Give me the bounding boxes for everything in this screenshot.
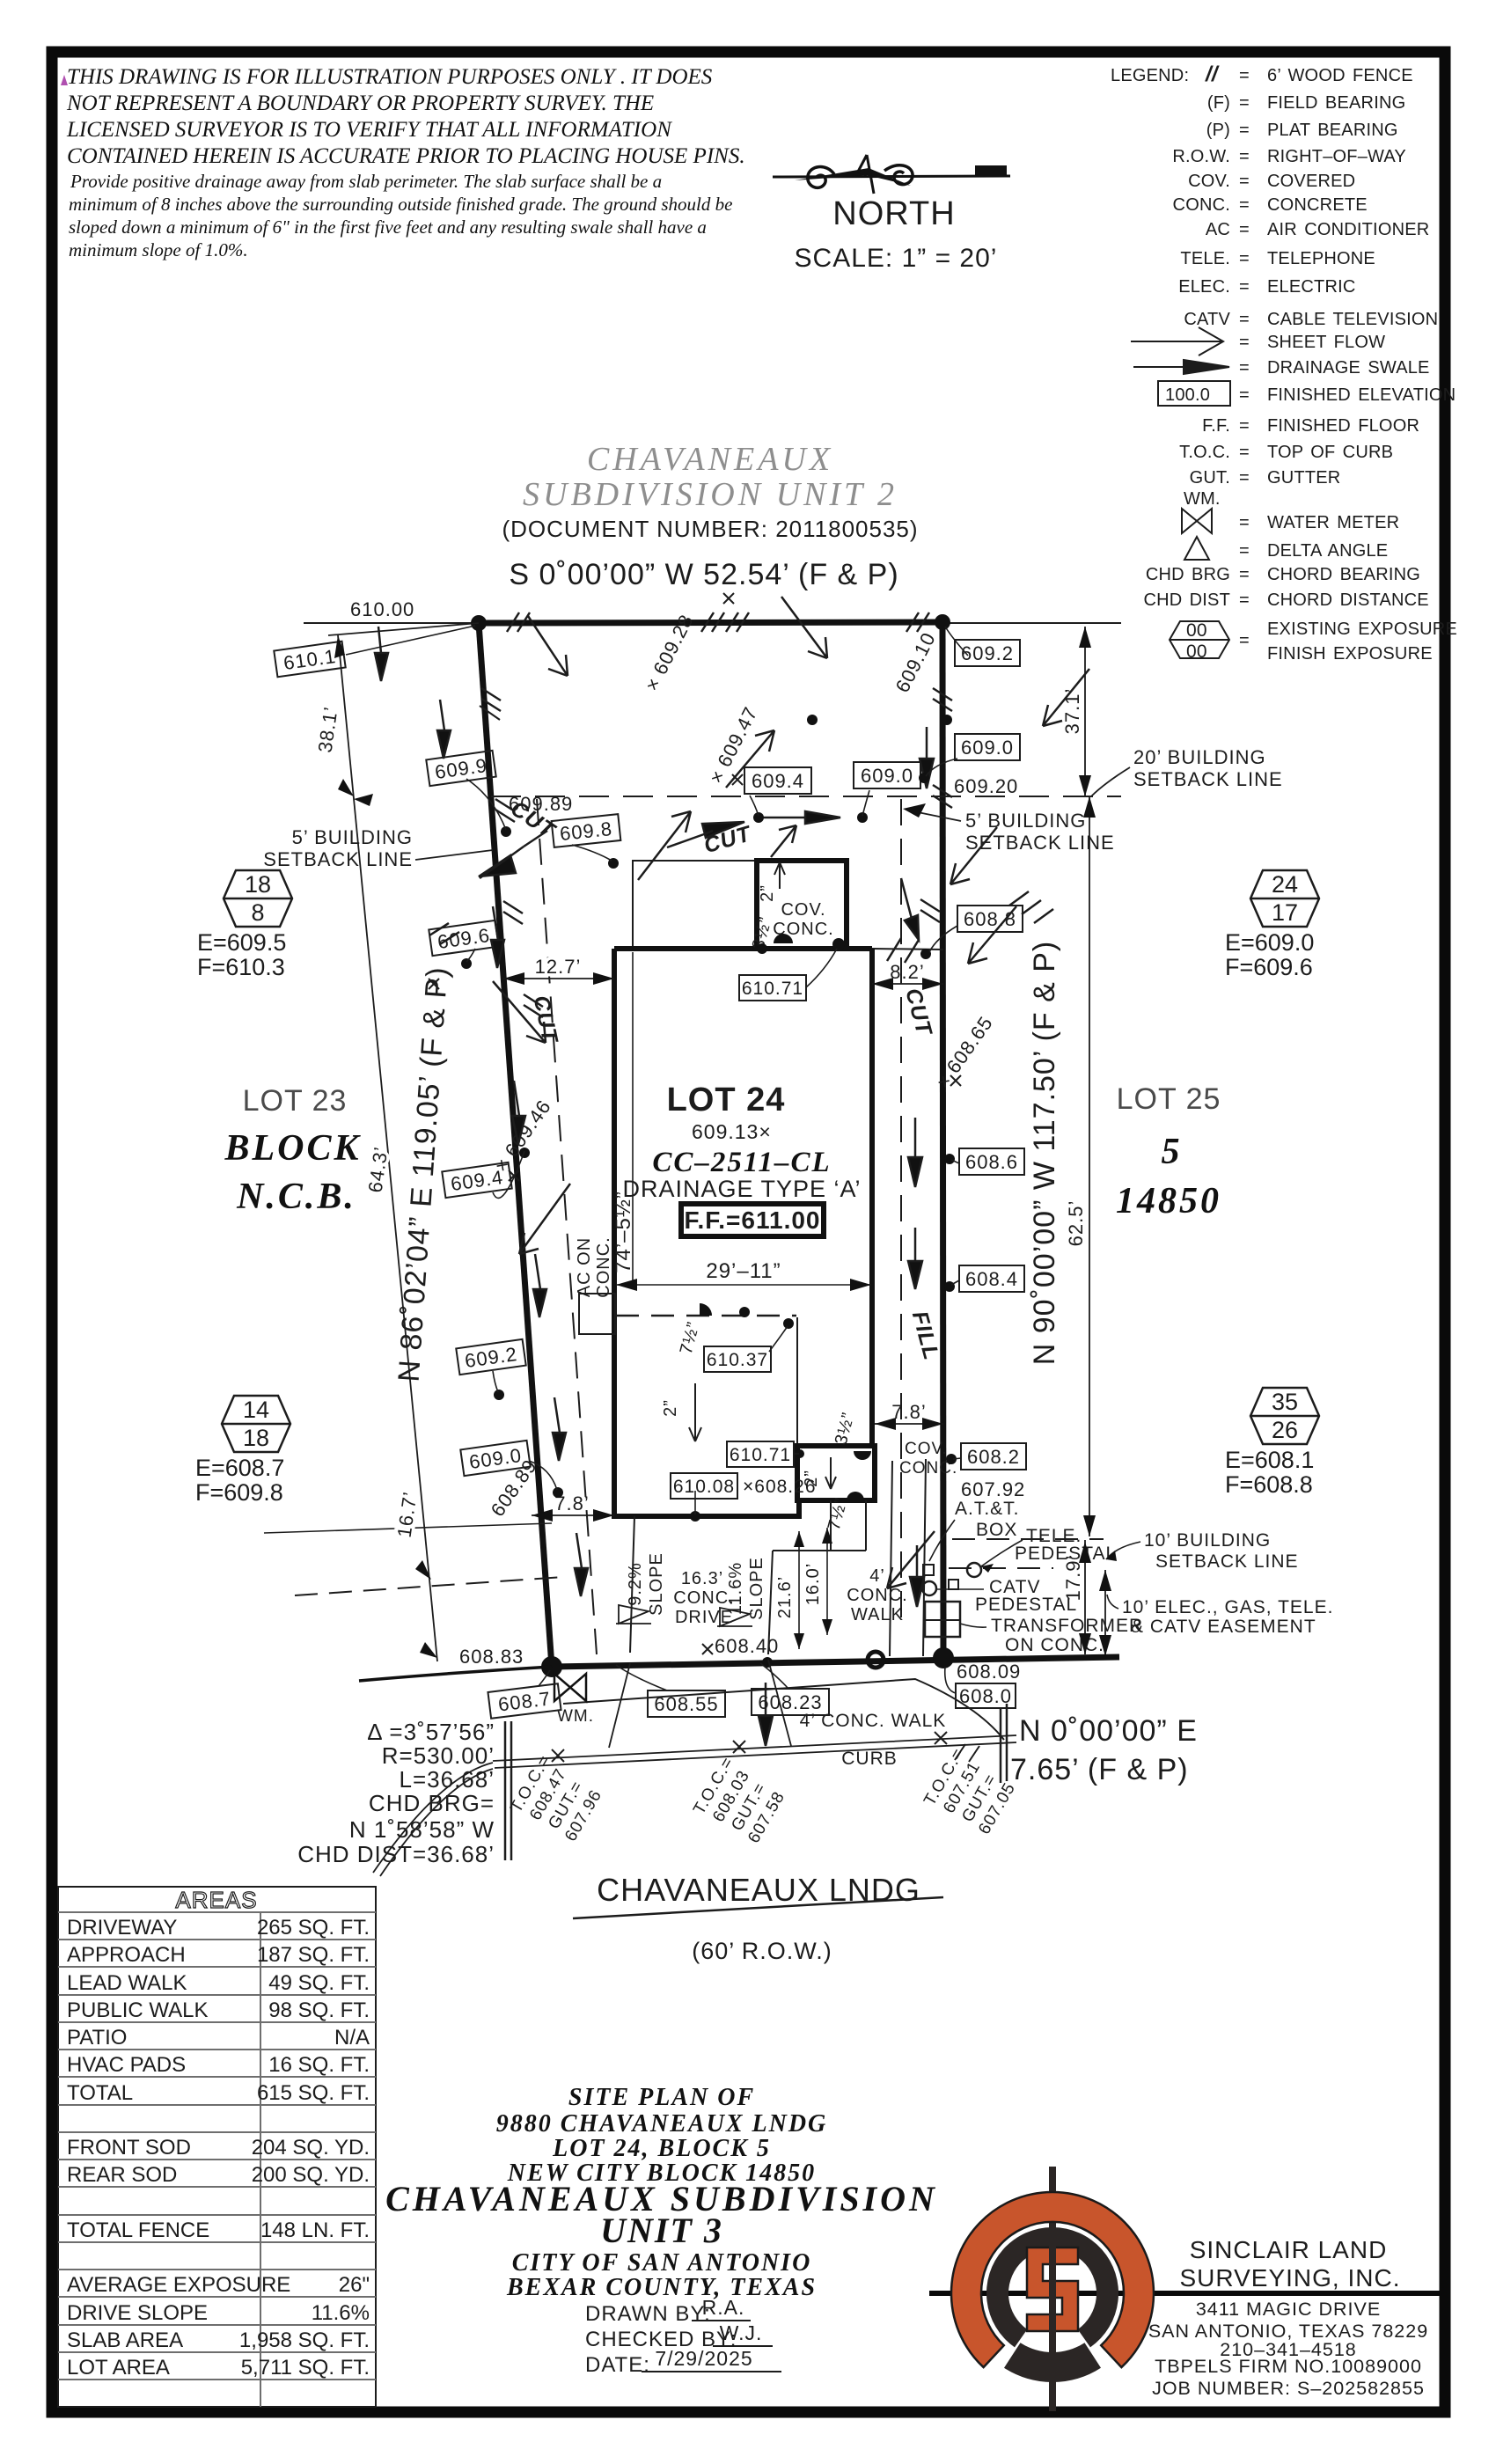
svg-text:=: = bbox=[1239, 565, 1250, 584]
svg-text:SHEET FLOW: SHEET FLOW bbox=[1267, 333, 1385, 352]
svg-text:ELECTRIC: ELECTRIC bbox=[1267, 277, 1356, 297]
svg-text:WM.: WM. bbox=[557, 1707, 594, 1726]
svg-text:R=530.00’: R=530.00’ bbox=[382, 1742, 495, 1769]
svg-text:LOT 23: LOT 23 bbox=[243, 1084, 348, 1118]
svg-text:35: 35 bbox=[1272, 1389, 1298, 1415]
svg-text:CONC.: CONC. bbox=[773, 920, 833, 939]
svg-text:SCALE: 1” = 20’: SCALE: 1” = 20’ bbox=[795, 244, 998, 273]
svg-text:SETBACK LINE: SETBACK LINE bbox=[263, 848, 413, 870]
svg-text:=: = bbox=[1239, 310, 1250, 329]
svg-text:610.71: 610.71 bbox=[730, 1445, 791, 1465]
svg-text:=: = bbox=[1239, 468, 1250, 488]
svg-text:608.2: 608.2 bbox=[967, 1446, 1020, 1468]
svg-text:CITY OF SAN ANTONIO: CITY OF SAN ANTONIO bbox=[512, 2249, 812, 2277]
svg-text:608.09: 608.09 bbox=[957, 1661, 1021, 1683]
svg-text:200 SQ. YD.: 200 SQ. YD. bbox=[252, 2163, 370, 2187]
svg-text:F=608.8: F=608.8 bbox=[1225, 1471, 1313, 1498]
svg-text:TOTAL FENCE: TOTAL FENCE bbox=[67, 2218, 209, 2242]
svg-text:608.83: 608.83 bbox=[459, 1646, 524, 1668]
svg-text:N.C.B.: N.C.B. bbox=[236, 1177, 356, 1217]
svg-text:7.8’: 7.8’ bbox=[891, 1401, 926, 1423]
svg-text://: // bbox=[1205, 62, 1220, 86]
svg-text:SINCLAIR LAND: SINCLAIR LAND bbox=[1190, 2236, 1388, 2263]
svg-text:2”: 2” bbox=[802, 1470, 821, 1487]
svg-text:37.1’: 37.1’ bbox=[1061, 688, 1083, 735]
svg-text:DRAINAGE TYPE ‘A’: DRAINAGE TYPE ‘A’ bbox=[622, 1176, 861, 1202]
svg-text:14: 14 bbox=[243, 1397, 269, 1423]
svg-text:SETBACK LINE: SETBACK LINE bbox=[1155, 1551, 1299, 1572]
svg-text:607.92: 607.92 bbox=[961, 1478, 1025, 1500]
svg-text:=: = bbox=[1239, 147, 1250, 166]
svg-text:7/29/2025: 7/29/2025 bbox=[655, 2347, 752, 2370]
svg-text:=: = bbox=[1239, 220, 1250, 239]
svg-text:5’ BUILDING: 5’ BUILDING bbox=[292, 826, 413, 848]
svg-text:10’ BUILDING: 10’ BUILDING bbox=[1144, 1530, 1271, 1551]
svg-text:5’ BUILDING: 5’ BUILDING bbox=[965, 810, 1086, 832]
svg-text:LOT 24, BLOCK 5: LOT 24, BLOCK 5 bbox=[552, 2135, 771, 2162]
svg-text:4’: 4’ bbox=[869, 1566, 885, 1586]
svg-text:Provide positive drainage away: Provide positive drainage away from slab… bbox=[70, 171, 662, 192]
svg-text:CHORD DISTANCE: CHORD DISTANCE bbox=[1267, 590, 1429, 610]
svg-text:16.0’: 16.0’ bbox=[803, 1563, 823, 1605]
svg-text:WATER METER: WATER METER bbox=[1267, 513, 1399, 532]
svg-text:NORTH: NORTH bbox=[832, 195, 955, 232]
svg-text:609.13×: 609.13× bbox=[692, 1120, 772, 1143]
svg-text:E=608.1: E=608.1 bbox=[1225, 1447, 1314, 1473]
svg-text:610.00: 610.00 bbox=[350, 598, 414, 620]
svg-text:LEGEND:: LEGEND: bbox=[1111, 66, 1189, 85]
svg-text:=: = bbox=[1239, 172, 1250, 191]
svg-text:W.J.: W.J. bbox=[720, 2321, 763, 2344]
svg-text:49 SQ. FT.: 49 SQ. FT. bbox=[268, 1971, 370, 1995]
svg-text:TELE.: TELE. bbox=[1180, 249, 1230, 268]
svg-text:CHORD BEARING: CHORD BEARING bbox=[1267, 565, 1420, 584]
svg-text:& CATV EASEMENT: & CATV EASEMENT bbox=[1131, 1617, 1316, 1637]
svg-text:minimum of 8 inches above the: minimum of 8 inches above the surroundin… bbox=[69, 194, 732, 215]
svg-text:DATE:: DATE: bbox=[585, 2353, 650, 2377]
svg-text:16.3’: 16.3’ bbox=[681, 1569, 723, 1588]
svg-text:AVERAGE EXPOSURE: AVERAGE EXPOSURE bbox=[67, 2273, 290, 2297]
svg-text:26": 26" bbox=[339, 2273, 370, 2297]
svg-text:R.A.: R.A. bbox=[702, 2296, 745, 2319]
svg-text:COV.: COV. bbox=[905, 1440, 948, 1458]
svg-text:SLAB AREA: SLAB AREA bbox=[67, 2328, 183, 2352]
svg-text:74’–5½”: 74’–5½” bbox=[612, 1191, 635, 1273]
svg-text:24: 24 bbox=[1272, 871, 1298, 898]
svg-text:sloped down a minimum of 6" in: sloped down a minimum of 6" in the first… bbox=[69, 216, 707, 238]
svg-text:=: = bbox=[1239, 590, 1250, 610]
svg-text:AC: AC bbox=[1206, 220, 1230, 239]
svg-text:COV.: COV. bbox=[1188, 172, 1230, 191]
svg-text:AC ON: AC ON bbox=[575, 1237, 594, 1297]
svg-text:PATIO: PATIO bbox=[67, 2026, 127, 2050]
svg-text:10’ ELEC., GAS, TELE.: 10’ ELEC., GAS, TELE. bbox=[1122, 1597, 1333, 1617]
svg-text:CATV: CATV bbox=[1184, 310, 1230, 329]
svg-text:CONTAINED HEREIN IS ACCURATE P: CONTAINED HEREIN IS ACCURATE PRIOR TO PL… bbox=[67, 144, 745, 168]
svg-text:N 90˚00’00” W 117.50’ (F: N 90˚00’00” W 117.50’ (F & P) bbox=[1028, 941, 1061, 1366]
svg-text:CHD DIST: CHD DIST bbox=[1143, 590, 1230, 610]
svg-text:SETBACK LINE: SETBACK LINE bbox=[1133, 768, 1283, 790]
svg-text:FRONT SOD: FRONT SOD bbox=[67, 2136, 191, 2160]
svg-text:PEDESTAL: PEDESTAL bbox=[975, 1595, 1077, 1615]
svg-text:CHD BRG=: CHD BRG= bbox=[369, 1790, 495, 1816]
svg-text:11.6%: 11.6% bbox=[726, 1562, 745, 1615]
svg-text:609.20: 609.20 bbox=[954, 775, 1018, 797]
svg-text:608.8: 608.8 bbox=[964, 908, 1016, 930]
svg-text:=: = bbox=[1239, 121, 1250, 140]
svg-text:E=608.7: E=608.7 bbox=[195, 1455, 284, 1481]
svg-text:A.T.&T.: A.T.&T. bbox=[955, 1499, 1020, 1519]
svg-text:5: 5 bbox=[1162, 1132, 1180, 1172]
svg-text:9.2%: 9.2% bbox=[626, 1562, 645, 1606]
svg-text:=: = bbox=[1239, 277, 1250, 297]
svg-text:F=610.3: F=610.3 bbox=[197, 954, 285, 980]
svg-text:=: = bbox=[1239, 631, 1250, 650]
svg-text:S 0˚00’00” W 52.54’ (F &: S 0˚00’00” W 52.54’ (F & P) bbox=[509, 558, 898, 591]
svg-text:62.5’: 62.5’ bbox=[1065, 1200, 1087, 1247]
svg-text:LOT AREA: LOT AREA bbox=[67, 2356, 170, 2380]
svg-text:TOTAL: TOTAL bbox=[67, 2081, 133, 2105]
svg-text:THIS DRAWING IS FOR ILLUSTRATI: THIS DRAWING IS FOR ILLUSTRATION PURPOSE… bbox=[67, 65, 713, 89]
svg-text:9880 CHAVANEAUX LNDG: 9880 CHAVANEAUX LNDG bbox=[496, 2110, 828, 2138]
svg-text:(60’ R.O.W.): (60’ R.O.W.) bbox=[692, 1938, 832, 1964]
svg-text:PEDESTAL: PEDESTAL bbox=[1015, 1544, 1117, 1564]
svg-text:20’ BUILDING: 20’ BUILDING bbox=[1133, 746, 1266, 768]
svg-text:17: 17 bbox=[1272, 899, 1298, 926]
svg-text:ELEC.: ELEC. bbox=[1178, 277, 1230, 297]
svg-text:=: = bbox=[1239, 93, 1250, 113]
svg-text:WM.: WM. bbox=[1184, 489, 1221, 509]
svg-text:4’ CONC. WALK: 4’ CONC. WALK bbox=[800, 1711, 947, 1731]
svg-text:FINISHED ELEVATION: FINISHED ELEVATION bbox=[1267, 385, 1456, 405]
svg-text:=: = bbox=[1239, 333, 1250, 352]
svg-text:11.6%: 11.6% bbox=[312, 2301, 370, 2325]
svg-text:CONC.: CONC. bbox=[847, 1586, 907, 1605]
svg-text:610.71: 610.71 bbox=[742, 979, 803, 999]
svg-text:8.2’: 8.2’ bbox=[890, 961, 924, 983]
svg-text:DELTA ANGLE: DELTA ANGLE bbox=[1267, 541, 1388, 561]
svg-text:HVAC PADS: HVAC PADS bbox=[67, 2053, 186, 2077]
svg-text:E=609.0: E=609.0 bbox=[1225, 929, 1314, 956]
svg-text:=: = bbox=[1239, 443, 1250, 462]
svg-text:=: = bbox=[1239, 541, 1250, 561]
svg-text:DRIVEWAY: DRIVEWAY bbox=[67, 1916, 177, 1940]
svg-text:FINISHED FLOOR: FINISHED FLOOR bbox=[1267, 416, 1419, 436]
svg-text:1,958 SQ. FT.: 1,958 SQ. FT. bbox=[239, 2328, 370, 2352]
svg-text:29’–11”: 29’–11” bbox=[706, 1259, 781, 1283]
svg-text:EXISTING EXPOSURE: EXISTING EXPOSURE bbox=[1267, 620, 1457, 639]
svg-text:TOP OF CURB: TOP OF CURB bbox=[1267, 443, 1393, 462]
svg-text:8: 8 bbox=[251, 899, 264, 926]
svg-text:609.2: 609.2 bbox=[961, 642, 1014, 664]
svg-text:Δ =3˚57’56”: Δ =3˚57’56” bbox=[367, 1719, 495, 1745]
svg-text:COV.: COV. bbox=[781, 900, 825, 920]
svg-text:L=36.68’: L=36.68’ bbox=[400, 1766, 495, 1793]
svg-text:CONCRETE: CONCRETE bbox=[1267, 195, 1368, 215]
svg-text:REAR SOD: REAR SOD bbox=[67, 2163, 177, 2187]
svg-text:DRIVE SLOPE: DRIVE SLOPE bbox=[67, 2301, 208, 2325]
svg-text:DRAWN BY:: DRAWN BY: bbox=[585, 2302, 711, 2326]
svg-text:18: 18 bbox=[243, 1425, 269, 1451]
svg-text:WALK: WALK bbox=[851, 1605, 904, 1624]
svg-text:609.0: 609.0 bbox=[861, 765, 913, 787]
svg-text:SETBACK LINE: SETBACK LINE bbox=[965, 832, 1115, 854]
svg-text:F=609.6: F=609.6 bbox=[1225, 954, 1313, 980]
svg-text:608.4: 608.4 bbox=[965, 1268, 1018, 1290]
svg-text:LOT 24: LOT 24 bbox=[667, 1082, 786, 1118]
svg-text:minimum slope of 1.0%.: minimum slope of 1.0%. bbox=[69, 239, 248, 260]
svg-text:COVERED: COVERED bbox=[1267, 172, 1355, 191]
svg-text:BEXAR COUNTY, TEXAS: BEXAR COUNTY, TEXAS bbox=[506, 2274, 817, 2301]
svg-text:TELEPHONE: TELEPHONE bbox=[1267, 249, 1375, 268]
svg-text:SURVEYING, INC.: SURVEYING, INC. bbox=[1180, 2264, 1401, 2292]
svg-text:204 SQ. YD.: 204 SQ. YD. bbox=[252, 2136, 370, 2160]
svg-text:BOX: BOX bbox=[976, 1520, 1017, 1540]
svg-text:UNIT 3: UNIT 3 bbox=[600, 2211, 723, 2250]
svg-text:615 SQ. FT.: 615 SQ. FT. bbox=[257, 2081, 370, 2105]
svg-text:=: = bbox=[1239, 195, 1250, 215]
svg-text:2”: 2” bbox=[661, 1399, 680, 1417]
svg-text:=: = bbox=[1239, 513, 1250, 532]
svg-text:26: 26 bbox=[1272, 1417, 1298, 1443]
svg-text:FINISH EXPOSURE: FINISH EXPOSURE bbox=[1267, 644, 1433, 664]
svg-text:(F): (F) bbox=[1207, 93, 1230, 113]
svg-text:F=609.8: F=609.8 bbox=[195, 1479, 283, 1506]
svg-text:LOT 25: LOT 25 bbox=[1117, 1082, 1221, 1116]
svg-text:CONC.: CONC. bbox=[1173, 195, 1230, 215]
svg-text:CHD DIST=36.68’: CHD DIST=36.68’ bbox=[297, 1841, 495, 1867]
svg-text:14850: 14850 bbox=[1116, 1181, 1221, 1221]
svg-text:608.40: 608.40 bbox=[715, 1635, 779, 1657]
svg-text:T.O.C.: T.O.C. bbox=[1179, 443, 1230, 462]
svg-text:APPROACH: APPROACH bbox=[67, 1943, 186, 1967]
svg-text:187 SQ. FT.: 187 SQ. FT. bbox=[257, 1943, 370, 1967]
svg-text:6’ WOOD FENCE: 6’ WOOD FENCE bbox=[1267, 66, 1413, 85]
svg-text:(P): (P) bbox=[1206, 121, 1230, 140]
svg-text:CC–2511–CL: CC–2511–CL bbox=[652, 1147, 831, 1178]
svg-text:3411 MAGIC DRIVE: 3411 MAGIC DRIVE bbox=[1196, 2299, 1381, 2320]
svg-text:N 1˚58’58” W: N 1˚58’58” W bbox=[349, 1816, 495, 1843]
svg-text:GUT.: GUT. bbox=[1190, 468, 1230, 488]
svg-text:LICENSED SURVEYOR IS TO VERIFY: LICENSED SURVEYOR IS TO VERIFY THAT ALL … bbox=[66, 118, 672, 142]
svg-text:21.6’: 21.6’ bbox=[775, 1576, 795, 1618]
svg-text:=: = bbox=[1239, 416, 1250, 436]
svg-text:609.0: 609.0 bbox=[961, 737, 1014, 759]
svg-text:608.55: 608.55 bbox=[654, 1693, 718, 1715]
svg-text:=: = bbox=[1239, 385, 1250, 405]
svg-text:PLAT BEARING: PLAT BEARING bbox=[1267, 121, 1398, 140]
svg-text:SUBDIVISION UNIT 2: SUBDIVISION UNIT 2 bbox=[523, 476, 898, 513]
svg-text:5,711 SQ. FT.: 5,711 SQ. FT. bbox=[241, 2356, 370, 2380]
svg-text:CHD BRG: CHD BRG bbox=[1146, 565, 1230, 584]
svg-text:F.F.: F.F. bbox=[1202, 416, 1230, 436]
svg-text:LEAD WALK: LEAD WALK bbox=[67, 1971, 187, 1995]
svg-text:610.37: 610.37 bbox=[707, 1350, 768, 1370]
svg-text:N 0˚00’00” E: N 0˚00’00” E bbox=[1019, 1714, 1198, 1748]
svg-text:NOT REPRESENT A BOUNDARY OR PR: NOT REPRESENT A BOUNDARY OR PROPERTY SUR… bbox=[66, 92, 654, 115]
svg-text:(DOCUMENT NUMBER: 2011800535: (DOCUMENT NUMBER: 2011800535) bbox=[502, 516, 918, 542]
svg-text:265 SQ. FT.: 265 SQ. FT. bbox=[257, 1916, 370, 1940]
svg-text:608.6: 608.6 bbox=[965, 1151, 1018, 1173]
svg-text:GUTTER: GUTTER bbox=[1267, 468, 1340, 488]
svg-text:DRAINAGE SWALE: DRAINAGE SWALE bbox=[1267, 358, 1430, 378]
svg-text:AREAS: AREAS bbox=[175, 1887, 257, 1913]
svg-text:18: 18 bbox=[245, 871, 271, 898]
svg-text:N/A: N/A bbox=[334, 2026, 370, 2050]
svg-text:BLOCK: BLOCK bbox=[224, 1128, 361, 1169]
svg-text:608.0: 608.0 bbox=[959, 1685, 1012, 1707]
svg-text:CABLE TELEVISION: CABLE TELEVISION bbox=[1267, 310, 1438, 329]
svg-text:E=609.5: E=609.5 bbox=[197, 929, 286, 956]
svg-text:=: = bbox=[1239, 66, 1250, 85]
svg-text:98 SQ. FT.: 98 SQ. FT. bbox=[268, 1998, 370, 2022]
svg-text:FIELD BEARING: FIELD BEARING bbox=[1267, 93, 1405, 113]
svg-text:00: 00 bbox=[1186, 620, 1207, 641]
svg-text:16 SQ. FT.: 16 SQ. FT. bbox=[268, 2053, 370, 2077]
svg-text:SITE PLAN OF: SITE PLAN OF bbox=[568, 2084, 755, 2111]
svg-text:SLOPE: SLOPE bbox=[747, 1557, 766, 1620]
svg-text:2”: 2” bbox=[758, 884, 777, 902]
svg-text:RIGHT–OF–WAY: RIGHT–OF–WAY bbox=[1267, 147, 1406, 166]
svg-text:R.O.W.: R.O.W. bbox=[1172, 147, 1230, 166]
svg-text:JOB NUMBER: S–202582855: JOB NUMBER: S–202582855 bbox=[1152, 2378, 1425, 2399]
svg-text:610.08: 610.08 bbox=[673, 1477, 735, 1497]
svg-text:SLOPE: SLOPE bbox=[647, 1552, 666, 1616]
svg-text:609.4: 609.4 bbox=[752, 770, 804, 792]
svg-text:PUBLIC WALK: PUBLIC WALK bbox=[67, 1998, 209, 2022]
svg-text:=: = bbox=[1239, 249, 1250, 268]
svg-text:TBPELS FIRM NO.10089000: TBPELS FIRM NO.10089000 bbox=[1155, 2356, 1422, 2377]
svg-text:=: = bbox=[1239, 358, 1250, 378]
svg-text:F.F.=611.00: F.F.=611.00 bbox=[684, 1206, 820, 1234]
svg-text:CHAVANEAUX: CHAVANEAUX bbox=[587, 441, 833, 478]
svg-text:148 LN. FT.: 148 LN. FT. bbox=[260, 2218, 370, 2242]
svg-text:CURB: CURB bbox=[841, 1749, 898, 1769]
svg-text:AIR CONDITIONER: AIR CONDITIONER bbox=[1267, 220, 1429, 239]
svg-text:TRANSFORMER: TRANSFORMER bbox=[991, 1616, 1143, 1636]
svg-text:CONC.: CONC. bbox=[594, 1236, 613, 1297]
svg-text:00: 00 bbox=[1186, 642, 1207, 662]
svg-text:7.65’ (F & P): 7.65’ (F & P) bbox=[1010, 1753, 1189, 1786]
svg-text:100.0: 100.0 bbox=[1165, 385, 1210, 405]
svg-text:12.7’: 12.7’ bbox=[535, 956, 582, 978]
